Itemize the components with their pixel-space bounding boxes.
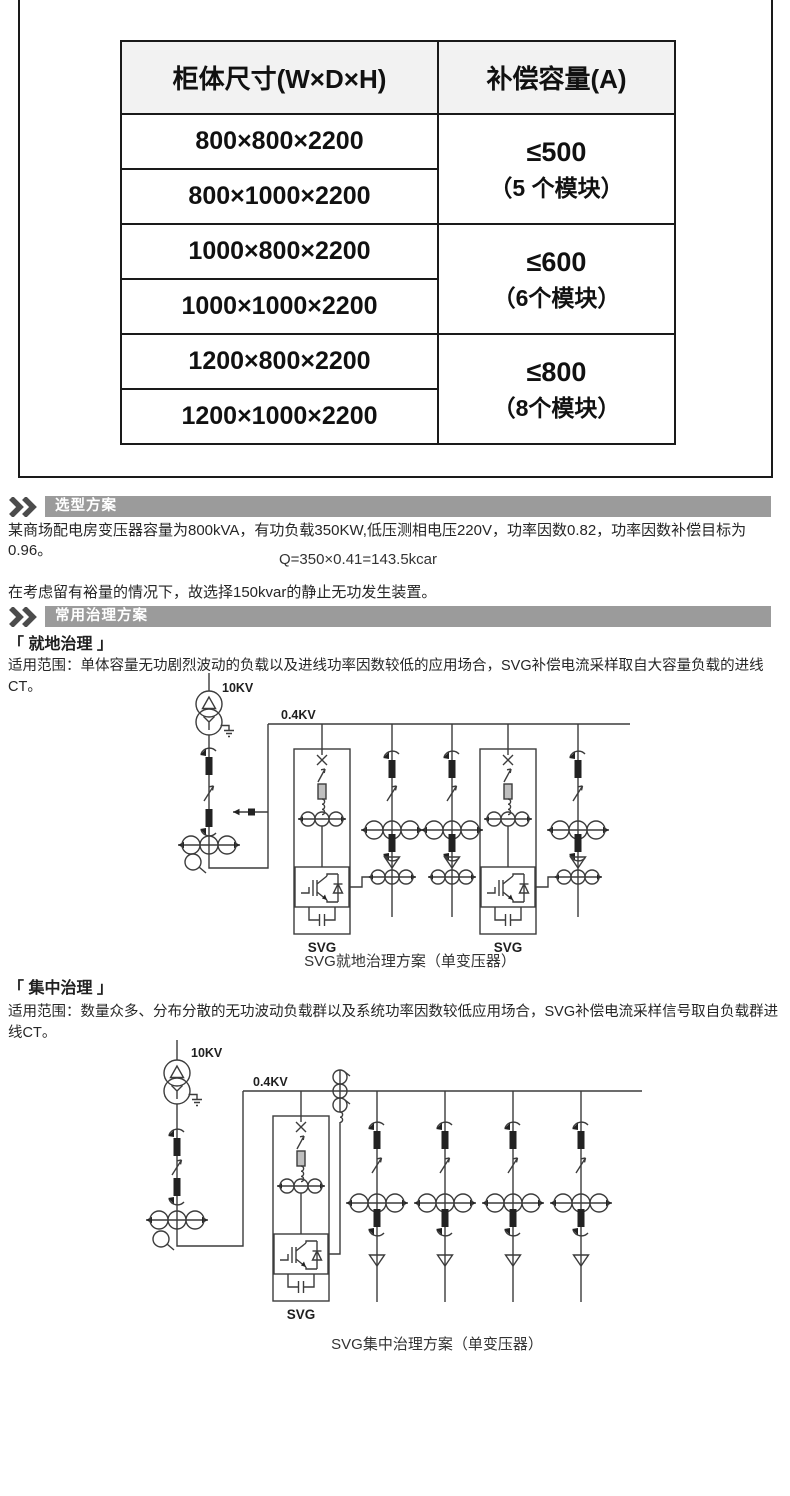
drawout-breaker-icon <box>200 809 216 836</box>
load-feeder <box>346 1091 408 1302</box>
section-title: 选型方案 <box>45 496 771 517</box>
svg-device <box>294 724 350 934</box>
drawout-breaker-icon <box>168 1178 184 1205</box>
load-feeder <box>550 1091 612 1302</box>
datasheet-page: 柜体尺寸(W×D×H) 补偿容量(A) 800×800×2200 ≤500 （5… <box>0 0 790 1496</box>
diagram-caption: SVG集中治理方案（单变压器） <box>331 1335 543 1353</box>
capacity-limit: ≤600 <box>439 247 674 277</box>
central-treatment-diagram: 10KV 0.4KV SVG SVG集中治理方案（单变压器） <box>100 1030 660 1360</box>
section-bar-treatment: 常用治理方案 <box>8 606 771 627</box>
cabinet-size-cell: 1200×800×2200 <box>121 334 438 389</box>
drawout-breaker-icon <box>200 748 216 775</box>
table-row: 1000×800×2200 ≤600 （6个模块） <box>121 224 675 279</box>
local-treatment-heading: 「 就地治理 」 <box>8 630 113 654</box>
section-title: 常用治理方案 <box>45 606 771 627</box>
capacity-cell: ≤500 （5 个模块） <box>438 114 675 224</box>
table-row: 1200×800×2200 ≤800 （8个模块） <box>121 334 675 389</box>
ct-icon <box>185 854 201 870</box>
double-chevron-icon <box>8 497 40 517</box>
lv-label: 0.4KV <box>253 1075 288 1089</box>
load-feeder <box>421 724 483 917</box>
load-feeder <box>361 724 423 917</box>
load-feeder <box>482 1091 544 1302</box>
capacity-modules: （8个模块） <box>439 395 674 421</box>
diagram-caption: SVG就地治理方案（单变压器） <box>304 952 516 970</box>
drawout-breaker-icon <box>168 1129 184 1156</box>
ct-icon <box>153 1231 169 1247</box>
capacity-limit: ≤800 <box>439 357 674 387</box>
ct-signal-link <box>329 1122 340 1254</box>
compensation-formula: Q=350×0.41=143.5kcar <box>0 551 716 568</box>
central-treatment-heading: 「 集中治理 」 <box>8 974 113 998</box>
lv-label: 0.4KV <box>281 708 316 722</box>
cabinet-size-cell: 1000×1000×2200 <box>121 279 438 334</box>
transformer-symbol <box>196 691 234 737</box>
cabinet-size-cell: 800×1000×2200 <box>121 169 438 224</box>
load-feeder <box>414 1091 476 1302</box>
ct-signal-link <box>535 877 554 887</box>
load-feeder <box>547 724 609 917</box>
capacity-limit: ≤500 <box>439 137 674 167</box>
hv-label: 10KV <box>191 1046 223 1060</box>
selection-conclusion: 在考虑留有裕量的情况下，故选择150kvar的静止无功发生装置。 <box>8 583 784 603</box>
table-row: 800×800×2200 ≤500 （5 个模块） <box>121 114 675 169</box>
capacity-cell: ≤800 （8个模块） <box>438 334 675 444</box>
cabinet-spec-table: 柜体尺寸(W×D×H) 补偿容量(A) 800×800×2200 ≤500 （5… <box>120 40 676 445</box>
capacity-header: 补偿容量(A) <box>438 41 675 114</box>
capacity-cell: ≤600 （6个模块） <box>438 224 675 334</box>
svg-device <box>480 724 536 934</box>
cabinet-size-cell: 1200×1000×2200 <box>121 389 438 444</box>
cabinet-size-cell: 1000×800×2200 <box>121 224 438 279</box>
cabinet-size-cell: 800×800×2200 <box>121 114 438 169</box>
ct-arrow <box>167 1244 174 1250</box>
section-bar-selection: 选型方案 <box>8 496 771 517</box>
capacity-modules: （5 个模块） <box>439 175 674 201</box>
local-treatment-diagram: 10KV 0.4KV SVG SVG SVG就地治理方案（单变压器） <box>150 670 650 970</box>
capacity-modules: （6个模块） <box>439 285 674 311</box>
table-header-row: 柜体尺寸(W×D×H) 补偿容量(A) <box>121 41 675 114</box>
hv-label: 10KV <box>222 681 254 695</box>
svg-device-label: SVG <box>287 1307 316 1322</box>
signal-tap-icon <box>233 809 268 816</box>
cabinet-size-header: 柜体尺寸(W×D×H) <box>121 41 438 114</box>
svg-device <box>273 1091 329 1301</box>
transformer-symbol <box>164 1060 202 1106</box>
double-chevron-icon <box>8 607 40 627</box>
bus-ct-icon <box>333 1070 350 1122</box>
ct-signal-link <box>349 877 368 887</box>
ct-arrow <box>199 867 206 873</box>
